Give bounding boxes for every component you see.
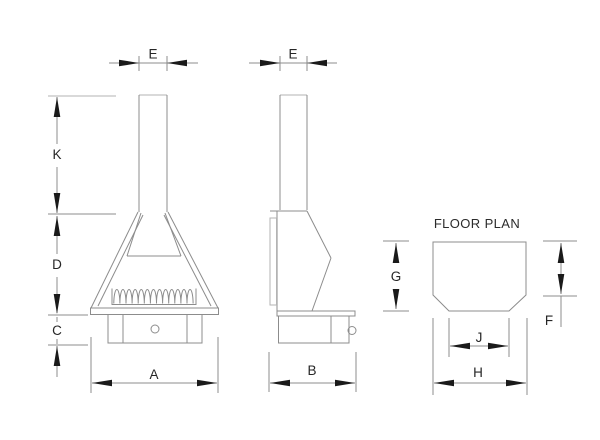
drawing-canvas: E K D C <box>0 0 600 440</box>
dim-b: B <box>269 352 356 392</box>
dim-d: D <box>48 216 88 315</box>
floor-plan-view: FLOOR PLAN G F <box>383 216 577 395</box>
dim-label-a: A <box>149 367 158 382</box>
dim-label-d: D <box>52 257 62 272</box>
floor-plan-outline <box>433 242 526 311</box>
dim-label-g: G <box>391 269 402 284</box>
floor-plan-title: FLOOR PLAN <box>434 216 520 231</box>
dim-e-side: E <box>249 47 337 72</box>
fireplace-dimension-drawing: E K D C <box>0 0 600 440</box>
dim-label-f: F <box>545 313 553 328</box>
front-view: E K D C <box>48 47 219 394</box>
back-heat-shield <box>270 218 277 305</box>
dim-label-c: C <box>52 323 62 338</box>
dim-c: C <box>48 317 88 377</box>
dim-g: G <box>383 241 409 311</box>
side-chimney <box>280 95 307 210</box>
dim-label-h: H <box>473 365 483 380</box>
dim-label-k: K <box>52 147 61 162</box>
dim-k: K <box>48 96 116 214</box>
dim-a: A <box>91 337 218 393</box>
side-body <box>270 211 331 311</box>
dim-label-e-side: E <box>288 47 297 62</box>
front-chimney <box>139 95 167 212</box>
front-hood <box>91 212 219 315</box>
front-grille <box>112 289 196 305</box>
dim-label-j: J <box>476 330 483 345</box>
front-base <box>108 315 202 344</box>
dim-label-e-front: E <box>148 47 157 62</box>
side-base <box>277 311 356 343</box>
dim-e-front: E <box>109 47 198 72</box>
dim-j: J <box>449 318 509 357</box>
dim-label-b: B <box>307 363 316 378</box>
side-view: E B <box>249 47 356 393</box>
dim-f: F <box>543 241 577 328</box>
damper-knob-front <box>151 325 159 333</box>
